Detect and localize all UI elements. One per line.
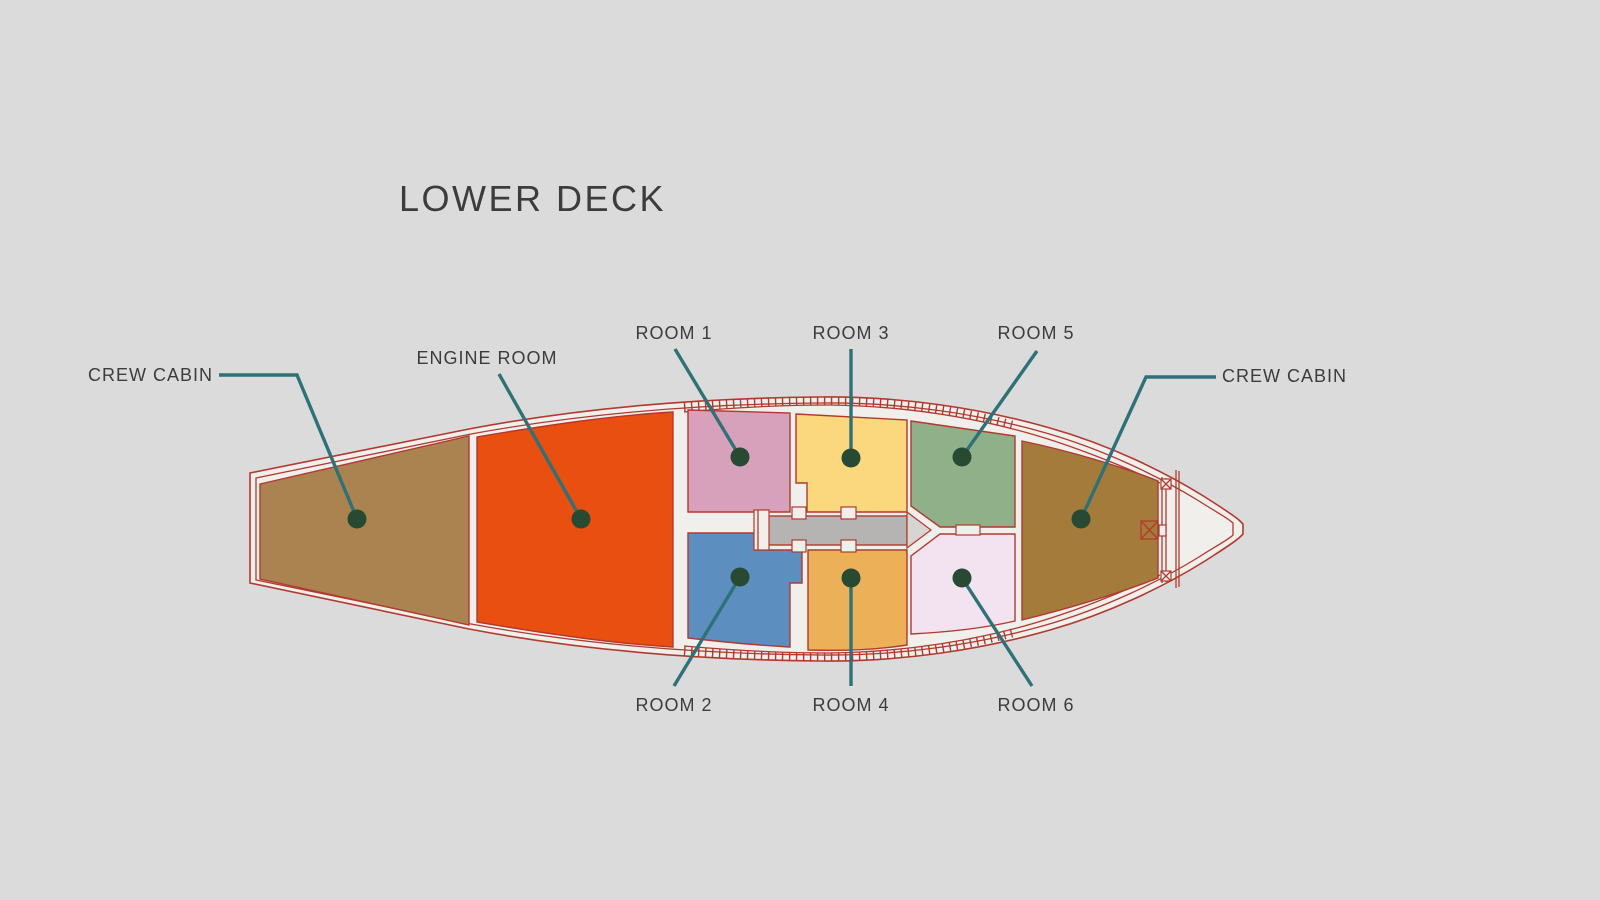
marker-engine-room[interactable] — [572, 510, 591, 529]
label-room-1: ROOM 1 — [635, 323, 712, 343]
doorway-top-right — [841, 507, 856, 519]
marker-room-1[interactable] — [731, 448, 750, 467]
corridor-walkway — [768, 516, 907, 545]
label-room-3: ROOM 3 — [812, 323, 889, 343]
marker-room-6[interactable] — [953, 569, 972, 588]
label-room-6: ROOM 6 — [997, 695, 1074, 715]
corridor-door-jamb — [754, 510, 769, 550]
doorway-bottom-right — [841, 540, 856, 552]
marker-crew-cabin-left[interactable] — [348, 510, 367, 529]
doorway-aft-rooms — [956, 525, 980, 535]
room-engine-room — [477, 412, 673, 647]
bulkhead-post-top — [1161, 479, 1171, 489]
label-room-2: ROOM 2 — [635, 695, 712, 715]
marker-crew-cabin-right[interactable] — [1072, 510, 1091, 529]
label-room-5: ROOM 5 — [997, 323, 1074, 343]
lower-deck-plan: LOWER DECK — [0, 0, 1600, 900]
doorway-bottom-left — [792, 540, 806, 552]
deck-title: LOWER DECK — [399, 178, 666, 219]
room-2 — [688, 533, 802, 647]
label-room-4: ROOM 4 — [812, 695, 889, 715]
deck-plan-page: LOWER DECK — [0, 0, 1600, 900]
label-crew-cabin-right: CREW CABIN — [1222, 366, 1347, 386]
label-crew-cabin-left: CREW CABIN — [88, 365, 213, 385]
room-4 — [808, 550, 907, 650]
marker-room-5[interactable] — [953, 448, 972, 467]
room-5 — [911, 421, 1015, 527]
marker-room-3[interactable] — [842, 449, 861, 468]
marker-room-4[interactable] — [842, 569, 861, 588]
label-engine-room: ENGINE ROOM — [416, 348, 557, 368]
doorway-top-left — [792, 507, 806, 519]
marker-room-2[interactable] — [731, 568, 750, 587]
bulkhead-post-bottom — [1161, 571, 1171, 581]
